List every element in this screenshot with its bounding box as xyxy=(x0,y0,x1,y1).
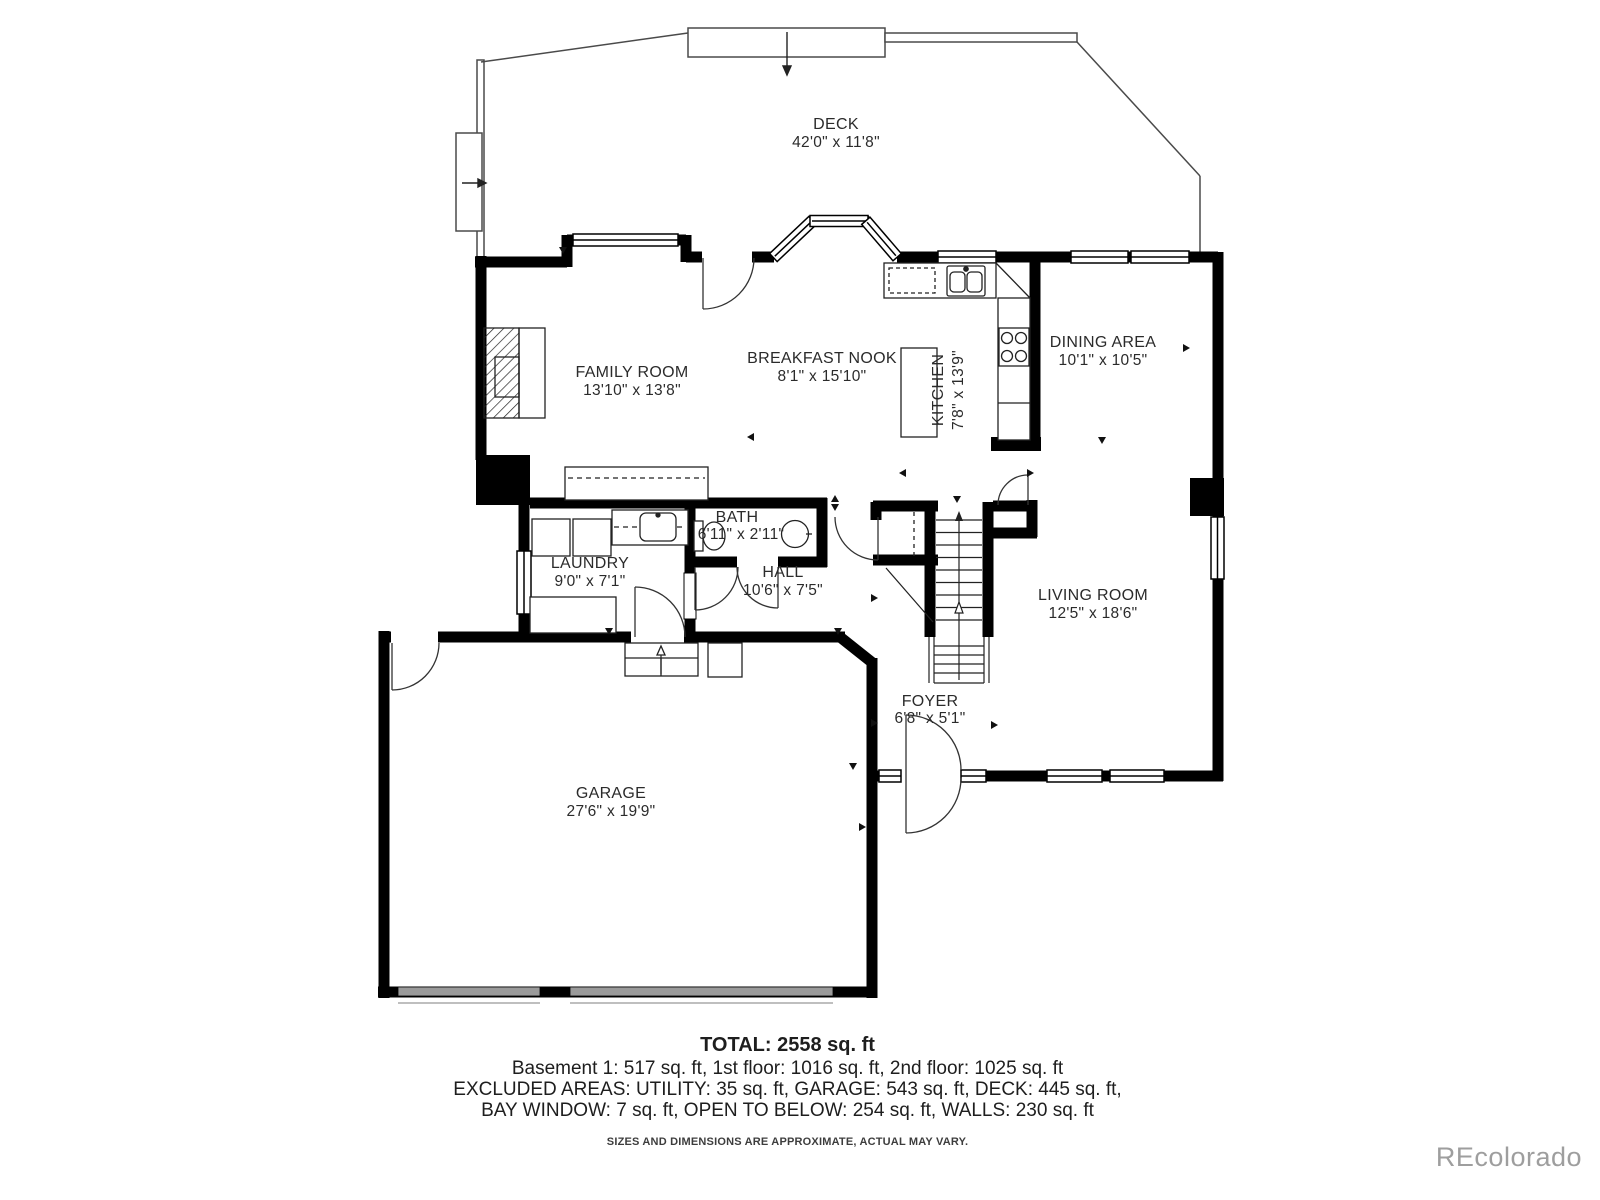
family-room-cabinet xyxy=(565,467,708,500)
room-label-garage: GARAGE xyxy=(576,785,646,802)
room-label-foyer: FOYER xyxy=(902,693,959,710)
laundry-garage-door xyxy=(635,587,685,637)
excluded-areas-text-2: BAY WINDOW: 7 sq. ft, OPEN TO BELOW: 254… xyxy=(0,1100,1575,1122)
room-label-breakfast-nook: BREAKFAST NOOK xyxy=(747,350,897,367)
main-stairs xyxy=(886,511,989,683)
recolorado-watermark: REcolorado xyxy=(1436,1142,1582,1173)
room-dims-breakfast-nook: 8'1" x 15'10" xyxy=(778,368,867,385)
room-dims-foyer: 6'8" x 5'1" xyxy=(894,710,965,727)
room-label-bath: BATH xyxy=(716,509,759,526)
floor-areas-text: Basement 1: 517 sq. ft, 1st floor: 1016 … xyxy=(0,1058,1575,1080)
fireplace xyxy=(484,328,545,418)
room-dims-living-room: 12'5" x 18'6" xyxy=(1049,605,1138,622)
room-dims-hall: 10'6" x 7'5" xyxy=(743,582,823,599)
pantry-door xyxy=(835,517,878,560)
room-label-kitchen-group: KITCHEN 7'8" x 13'9" xyxy=(930,350,967,430)
bath-sink xyxy=(782,521,809,548)
floor-plan-svg: DECK 42'0" x 11'8" FAMILY ROOM 13'10" x … xyxy=(0,0,1600,1200)
kitchen-sink xyxy=(947,266,985,296)
living-room-south-window-2 xyxy=(1110,770,1164,782)
bay-window-center xyxy=(810,216,868,227)
room-label-hall: HALL xyxy=(762,564,803,581)
room-label-laundry: LAUNDRY xyxy=(551,555,629,572)
room-dims-dining-area: 10'1" x 10'5" xyxy=(1059,352,1148,369)
dining-window-1 xyxy=(1071,251,1128,263)
dining-window-2 xyxy=(1131,251,1189,263)
foyer-sidelight-left xyxy=(879,770,901,782)
room-label-dining-area: DINING AREA xyxy=(1050,334,1156,351)
family-room-window xyxy=(573,234,678,246)
kitchen-stove xyxy=(999,328,1029,366)
room-dims-bath: 6'11" x 2'11" xyxy=(698,526,785,543)
bay-window-right xyxy=(862,217,902,261)
garage-closet xyxy=(708,643,742,677)
garage-stairs xyxy=(625,643,742,677)
room-label-living-room: LIVING ROOM xyxy=(1038,587,1148,604)
room-dims-deck: 42'0" x 11'8" xyxy=(792,134,880,151)
washer xyxy=(532,519,570,556)
hall-laundry-door xyxy=(695,567,738,610)
room-label-deck: DECK xyxy=(813,116,859,133)
laundry-window xyxy=(517,551,531,614)
garage-doors xyxy=(398,987,833,1003)
room-dims-garage: 27'6" x 19'9" xyxy=(567,803,656,820)
nook-deck-door xyxy=(703,258,754,309)
laundry-hall-opening xyxy=(684,573,696,619)
excluded-areas-text: EXCLUDED AREAS: UTILITY: 35 sq. ft, GARA… xyxy=(0,1079,1575,1101)
total-area-text: TOTAL: 2558 sq. ft xyxy=(0,1034,1575,1057)
room-dims-family-room: 13'10" x 13'8" xyxy=(583,382,681,399)
floor-plan-page: DECK 42'0" x 11'8" FAMILY ROOM 13'10" x … xyxy=(0,0,1600,1200)
garage-side-door xyxy=(392,643,439,690)
room-label-kitchen: KITCHEN xyxy=(930,354,947,426)
chimney-block xyxy=(1190,478,1224,516)
room-label-family-room: FAMILY ROOM xyxy=(576,364,689,381)
room-dims-laundry: 9'0" x 7'1" xyxy=(554,573,625,590)
dryer xyxy=(573,519,611,556)
disclaimer-text: SIZES AND DIMENSIONS ARE APPROXIMATE, AC… xyxy=(0,1136,1575,1148)
living-room-east-window xyxy=(1211,517,1224,579)
living-room-south-window-1 xyxy=(1047,770,1102,782)
room-dims-kitchen: 7'8" x 13'9" xyxy=(950,350,967,430)
foyer-sidelight-right xyxy=(961,770,986,782)
kitchen-window xyxy=(938,251,996,263)
